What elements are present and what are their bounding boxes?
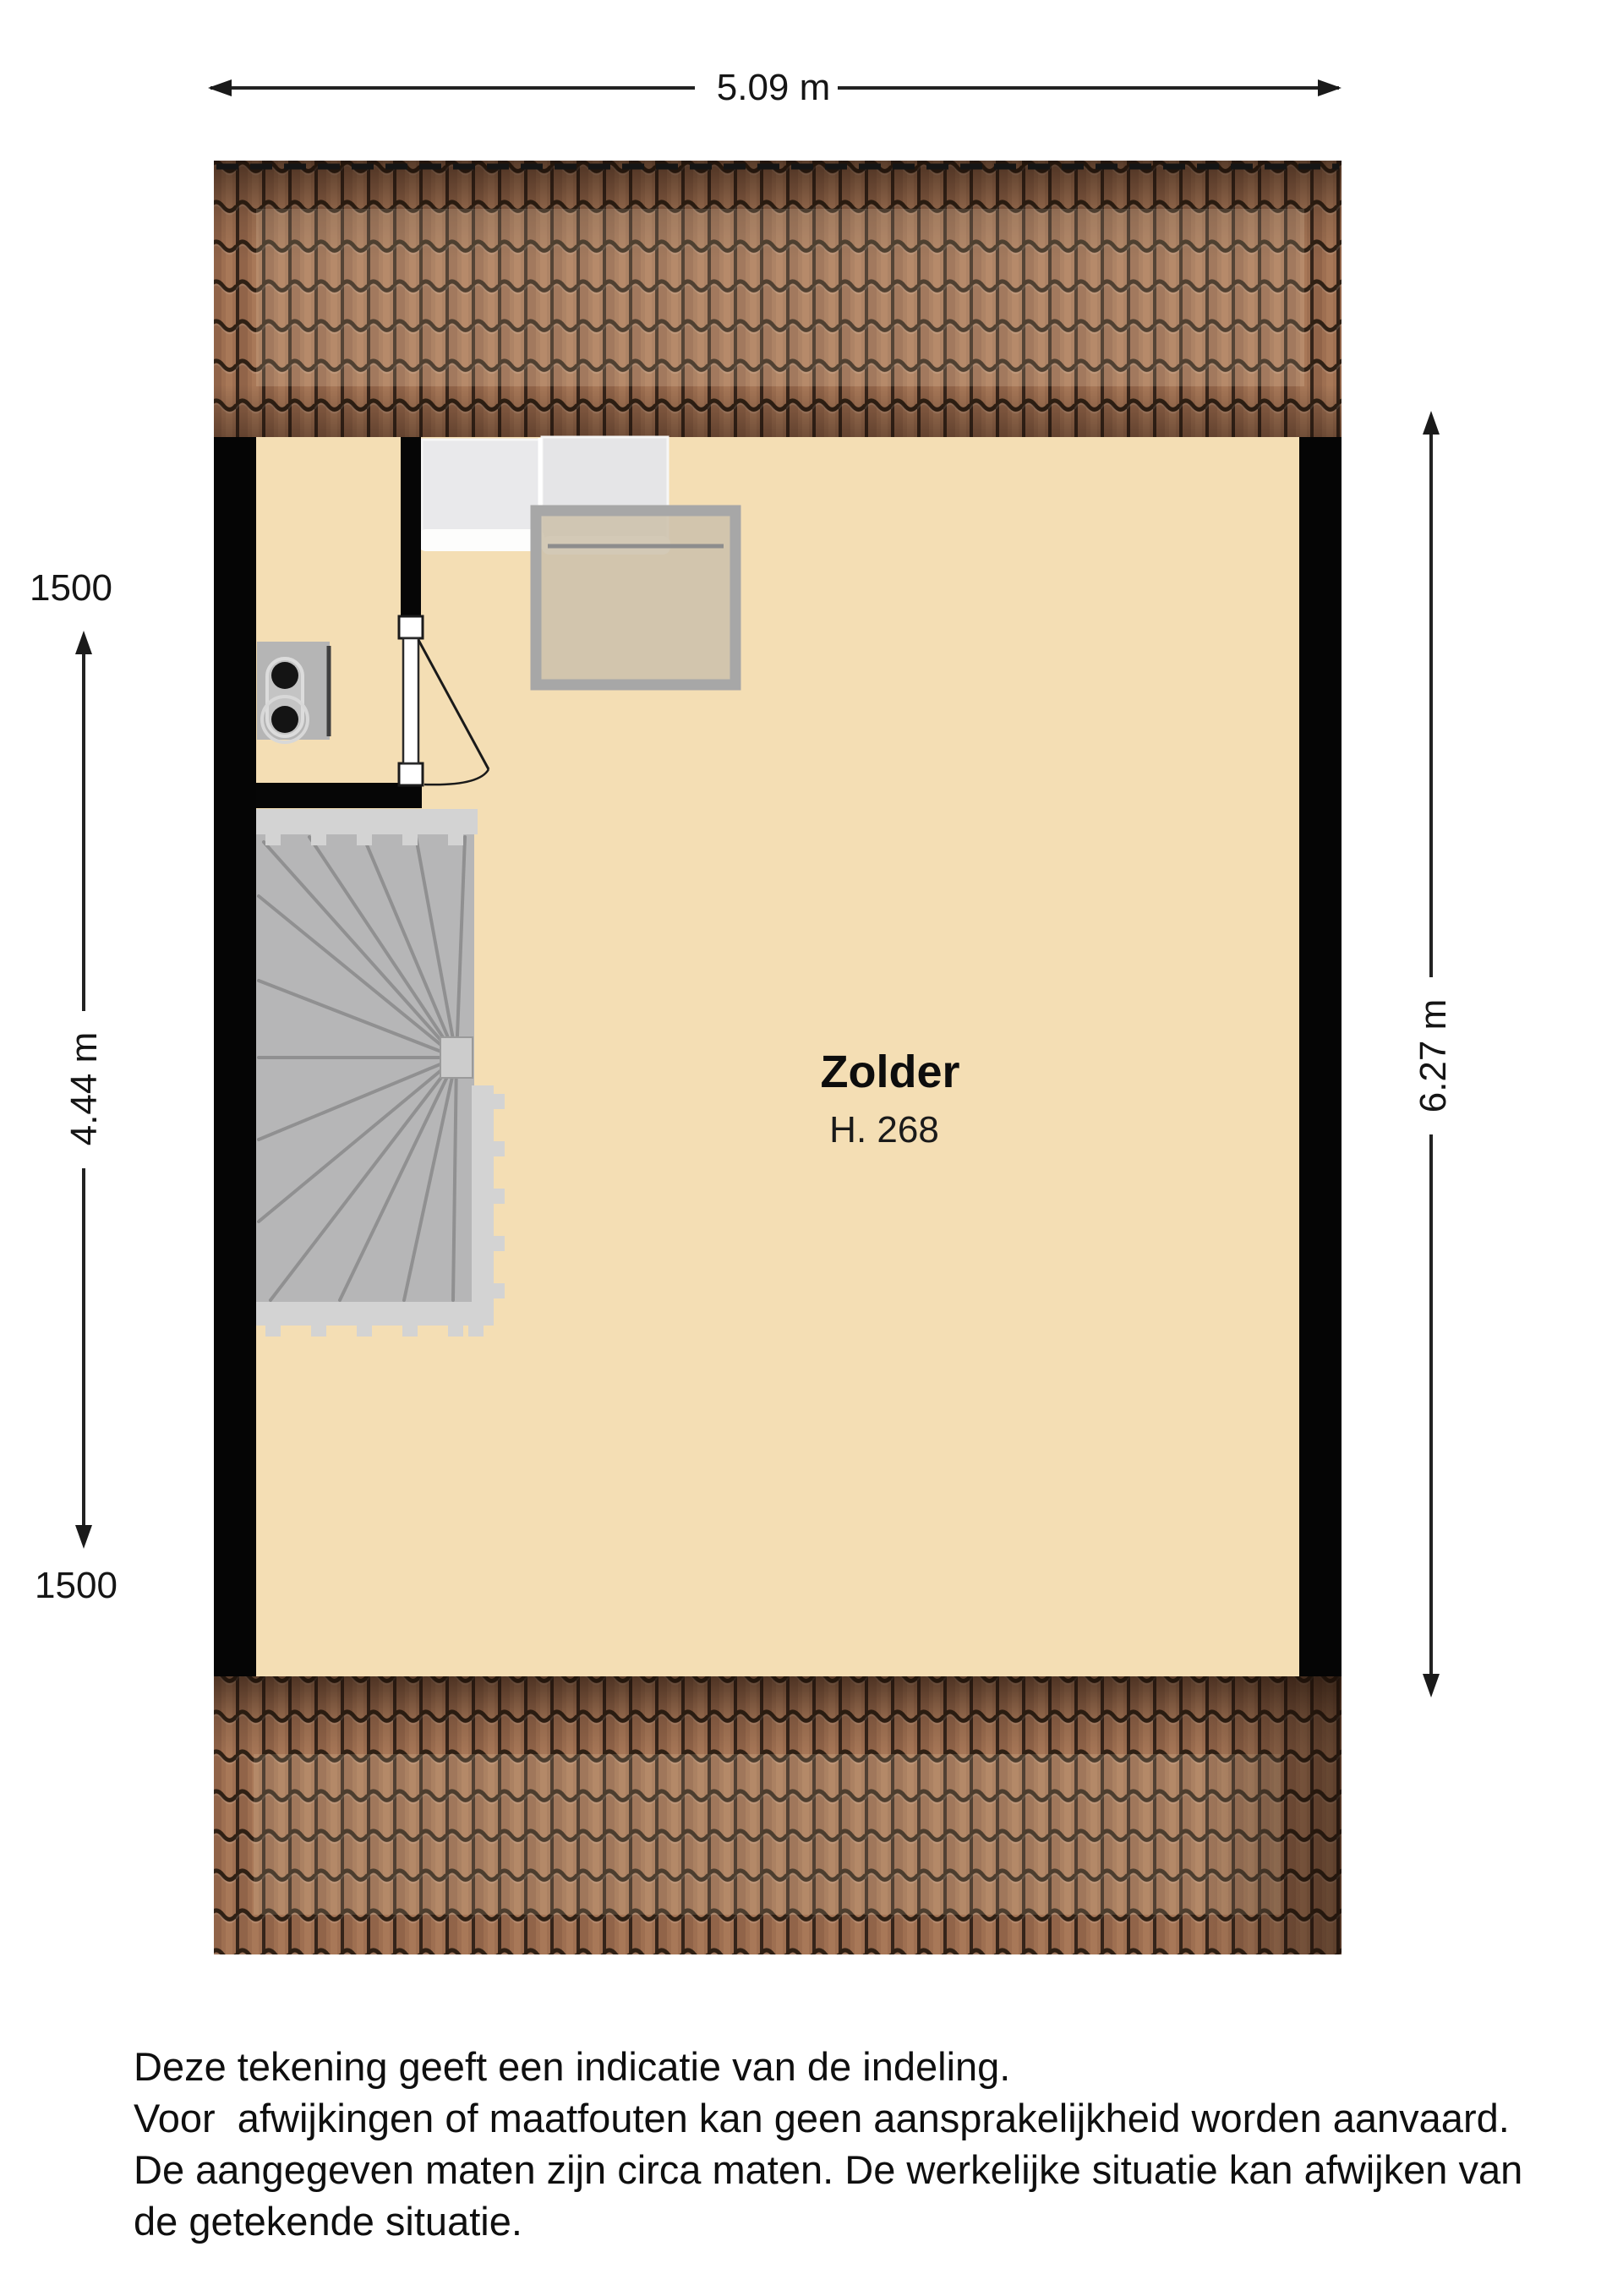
room-height-label: H. 268 xyxy=(829,1109,939,1151)
door-post-bottom xyxy=(399,763,423,785)
wall-closet-horizontal xyxy=(256,783,422,808)
wall-closet-vertical xyxy=(401,437,421,618)
dimension-label-height-right: 6.27 m xyxy=(1413,999,1455,1113)
disclaimer-text: Deze tekening geeft een indicatie van de… xyxy=(134,2041,1522,2247)
wall-right xyxy=(1299,437,1342,1676)
door-leaf-closed xyxy=(403,638,418,763)
arrow-down-icon xyxy=(1423,1674,1440,1697)
disclaimer-line: de getekende situatie. xyxy=(134,2195,1522,2247)
arrow-down-icon xyxy=(75,1525,92,1549)
knee-wall-label-top: 1500 xyxy=(30,567,112,610)
arrow-up-icon xyxy=(1423,411,1440,435)
disclaimer-line: Voor afwijkingen of maatfouten kan geen … xyxy=(134,2092,1522,2144)
door-post-top xyxy=(399,616,423,638)
ventilation-unit-icon xyxy=(257,642,330,742)
wall-left xyxy=(214,437,256,1676)
roof-bottom xyxy=(214,1676,1342,1954)
knee-wall-label-bottom: 1500 xyxy=(35,1565,117,1607)
stair-newel-post xyxy=(440,1037,473,1078)
arrow-left-icon xyxy=(208,79,232,96)
floorplan-drawing xyxy=(0,0,1623,2296)
dimension-label-width: 5.09 m xyxy=(717,67,831,109)
disclaimer-line: Deze tekening geeft een indicatie van de… xyxy=(134,2041,1522,2092)
room-label: Zolder xyxy=(820,1046,959,1098)
disclaimer-line: De aangegeven maten zijn circa maten. De… xyxy=(134,2144,1522,2195)
skylight-icon xyxy=(531,506,740,690)
staircase-icon xyxy=(256,809,505,1337)
arrow-right-icon xyxy=(1318,79,1342,96)
arrow-up-icon xyxy=(75,631,92,654)
floorplan-page: 5.09 m 1500 4.44 m 1500 6.27 m Zolder H.… xyxy=(0,0,1623,2296)
roof-top xyxy=(214,161,1342,437)
dimension-label-height-left: 4.44 m xyxy=(63,1032,106,1146)
